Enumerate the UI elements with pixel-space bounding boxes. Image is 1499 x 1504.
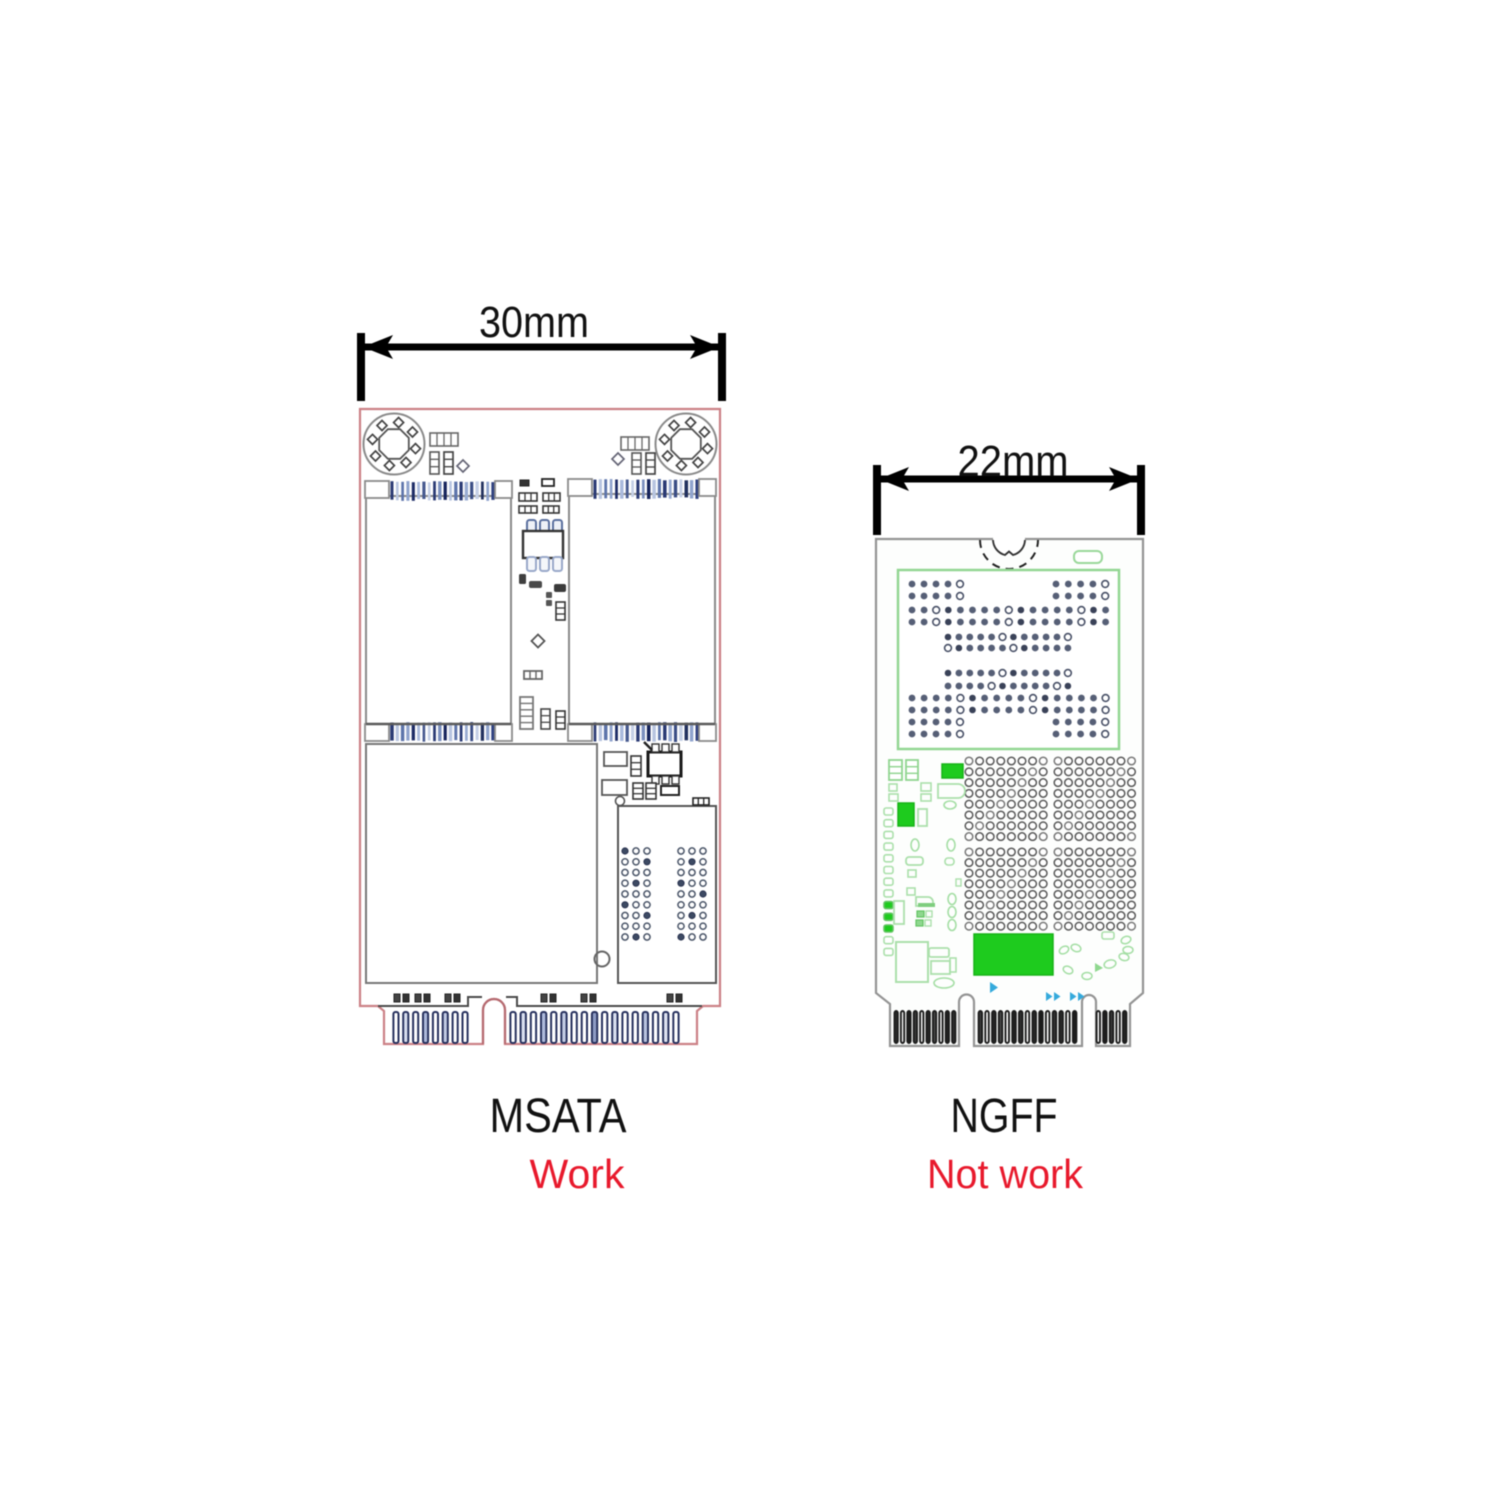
svg-text:22mm: 22mm [958, 437, 1069, 486]
svg-text:MSATA: MSATA [490, 1090, 627, 1143]
svg-text:Work: Work [530, 1151, 625, 1197]
svg-text:NGFF: NGFF [951, 1090, 1058, 1143]
svg-text:Not work: Not work [927, 1151, 1083, 1197]
svg-text:30mm: 30mm [479, 298, 589, 347]
